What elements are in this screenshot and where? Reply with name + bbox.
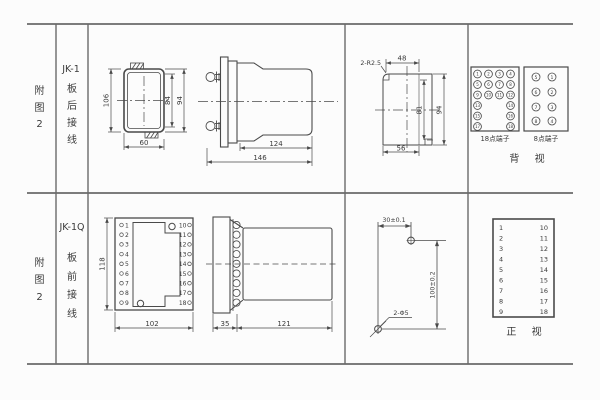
t18-num: 14 bbox=[508, 103, 514, 108]
t18-num: 9 bbox=[476, 93, 479, 98]
dim-102: 102 bbox=[145, 320, 158, 328]
front-terminal-table: 1 2 3 4 5 6 7 8 9 10 11 12 13 14 15 16 1… bbox=[493, 219, 554, 338]
mounting-hole-top bbox=[169, 223, 175, 229]
row1-figure-number: 附图2 bbox=[33, 84, 46, 134]
tbl-num: 12 bbox=[540, 245, 548, 253]
t18-num: 16 bbox=[508, 114, 514, 119]
fv-num: 11 bbox=[179, 232, 187, 239]
tbl-num: 11 bbox=[540, 235, 548, 243]
t8-num: 4 bbox=[551, 119, 554, 125]
label-18-terminal: 18点端子 bbox=[480, 134, 509, 143]
dim-118: 118 bbox=[99, 257, 107, 270]
dim-30: 30±0.1 bbox=[382, 217, 405, 224]
terminal-18-numbers: 1 2 3 4 5 6 7 8 9 10 11 12 13 14 15 16 1… bbox=[475, 72, 514, 130]
t18-num: 13 bbox=[475, 103, 481, 108]
label-rear-view: 背 视 bbox=[509, 152, 550, 165]
fv-num: 10 bbox=[179, 222, 187, 229]
dim-94: 94 bbox=[176, 96, 184, 105]
center-lines bbox=[117, 76, 171, 126]
note-2-r2-5: 2-R2.5 bbox=[360, 60, 381, 67]
tbl-num: 8 bbox=[499, 298, 503, 306]
t18-num: 11 bbox=[497, 93, 503, 98]
t8-num: 1 bbox=[551, 75, 554, 81]
tbl-num: 3 bbox=[499, 245, 503, 253]
t18-num: 5 bbox=[476, 82, 479, 87]
tbl-num: 6 bbox=[499, 277, 503, 285]
mounting-tab-top bbox=[131, 63, 144, 69]
tbl-num: 18 bbox=[540, 308, 548, 316]
mounting-tab-bottom bbox=[145, 132, 158, 138]
fv-num: 1 bbox=[125, 222, 129, 229]
rear-view-drawing: 106 84 94 60 bbox=[103, 63, 188, 150]
fv-num: 13 bbox=[179, 251, 187, 258]
tbl-num: 1 bbox=[499, 224, 503, 232]
table-numbers-left: 1 2 3 4 5 6 7 8 9 bbox=[499, 224, 503, 316]
row2-model-label: JK-1Q bbox=[53, 222, 91, 233]
row2-wiring-label: 板前接线 bbox=[66, 250, 78, 324]
t8-num: 3 bbox=[551, 105, 554, 111]
front-view-drawing: 1 2 3 4 5 6 7 8 9 10 11 12 13 14 15 16 1… bbox=[99, 218, 194, 332]
fv-num: 5 bbox=[125, 261, 129, 268]
panel-cutout-drawing: 2-R2.5 48 81 94 56 bbox=[360, 55, 447, 157]
terminal-block-8 bbox=[524, 67, 568, 131]
t18-num: 17 bbox=[475, 124, 481, 129]
row1-model-label: JK-1 bbox=[58, 64, 84, 75]
tbl-num: 7 bbox=[499, 287, 503, 295]
table-numbers-right: 10 11 12 13 14 15 16 17 18 bbox=[540, 224, 548, 316]
t18-num: 10 bbox=[486, 93, 492, 98]
label-front-view: 正 视 bbox=[506, 325, 547, 338]
side-view-drawing: 124 146 bbox=[198, 57, 338, 166]
t8-num: 5 bbox=[535, 75, 538, 81]
fv-num: 12 bbox=[179, 242, 187, 249]
fv-num: 3 bbox=[125, 242, 129, 249]
t8-num: 6 bbox=[535, 90, 538, 96]
t8-num: 7 bbox=[535, 105, 538, 111]
fv-num: 4 bbox=[125, 251, 129, 258]
dim-100: 100±0.2 bbox=[430, 271, 437, 298]
tbl-num: 16 bbox=[540, 287, 548, 295]
dim-35: 35 bbox=[221, 320, 230, 328]
dim-48: 48 bbox=[398, 55, 407, 63]
fv-num: 6 bbox=[125, 271, 129, 278]
drill-plan-drawing: 30±0.1 100±0.2 2-Φ5 bbox=[370, 217, 446, 337]
fv-num: 17 bbox=[179, 290, 187, 297]
tbl-num: 9 bbox=[499, 308, 503, 316]
fv-num: 18 bbox=[179, 300, 187, 307]
fv-num: 9 bbox=[125, 300, 129, 307]
t18-num: 7 bbox=[498, 82, 501, 87]
dim-84: 84 bbox=[164, 96, 172, 105]
tbl-num: 14 bbox=[540, 266, 548, 274]
tbl-num: 17 bbox=[540, 298, 548, 306]
dim-106: 106 bbox=[103, 93, 111, 107]
terminal-screw-bottom bbox=[206, 121, 221, 132]
dim-121: 121 bbox=[277, 320, 290, 328]
front-side-dim-lines bbox=[213, 301, 332, 332]
t18-num: 1 bbox=[476, 72, 479, 77]
t18-num: 15 bbox=[475, 114, 481, 119]
front-terminal-numbers-left: 1 2 3 4 5 6 7 8 9 bbox=[125, 222, 129, 307]
fv-num: 15 bbox=[179, 271, 187, 278]
terminal-views-rear: 1 2 3 4 5 6 7 8 9 10 11 12 13 14 15 16 1… bbox=[471, 67, 568, 165]
row1-wiring-label: 板后接线 bbox=[66, 81, 78, 149]
tbl-num: 15 bbox=[540, 277, 548, 285]
tbl-num: 5 bbox=[499, 266, 503, 274]
t18-num: 12 bbox=[508, 93, 514, 98]
dim-124: 124 bbox=[269, 140, 283, 148]
terminal-18-circles bbox=[474, 70, 515, 130]
t18-num: 3 bbox=[498, 72, 501, 77]
tbl-num: 4 bbox=[499, 256, 503, 264]
t18-num: 8 bbox=[509, 82, 512, 87]
dim-81: 81 bbox=[416, 106, 424, 115]
dim-56: 56 bbox=[397, 145, 406, 153]
fv-num: 16 bbox=[179, 281, 187, 288]
table-grid bbox=[27, 24, 573, 364]
mounting-hole-bottom bbox=[137, 300, 143, 306]
front-side-view-drawing: 35 121 bbox=[206, 217, 338, 332]
figure-sheet: 106 84 94 60 124 146 bbox=[0, 0, 600, 400]
fv-num: 7 bbox=[125, 281, 129, 288]
fv-num: 2 bbox=[125, 232, 129, 239]
front-terminal-numbers-right: 10 11 12 13 14 15 16 17 18 bbox=[179, 222, 187, 307]
note-holes: 2-Φ5 bbox=[393, 310, 408, 317]
t18-num: 18 bbox=[508, 124, 514, 129]
fv-num: 14 bbox=[179, 261, 187, 268]
dim-60: 60 bbox=[140, 139, 149, 147]
tbl-num: 13 bbox=[540, 256, 548, 264]
dim-146: 146 bbox=[253, 154, 267, 162]
t8-num: 2 bbox=[551, 90, 554, 96]
tbl-num: 2 bbox=[499, 235, 503, 243]
row2-figure-number: 附图2 bbox=[33, 255, 46, 306]
technical-drawing-canvas: 106 84 94 60 124 146 bbox=[0, 0, 600, 400]
tbl-num: 10 bbox=[540, 224, 548, 232]
t8-num: 8 bbox=[535, 119, 538, 125]
terminal-screw-top bbox=[206, 72, 221, 83]
fv-num: 8 bbox=[125, 290, 129, 297]
dim-94b: 94 bbox=[436, 105, 444, 114]
label-8-terminal: 8点端子 bbox=[534, 134, 559, 143]
t18-num: 6 bbox=[487, 82, 490, 87]
t18-num: 4 bbox=[509, 72, 512, 77]
t18-num: 2 bbox=[487, 72, 490, 77]
